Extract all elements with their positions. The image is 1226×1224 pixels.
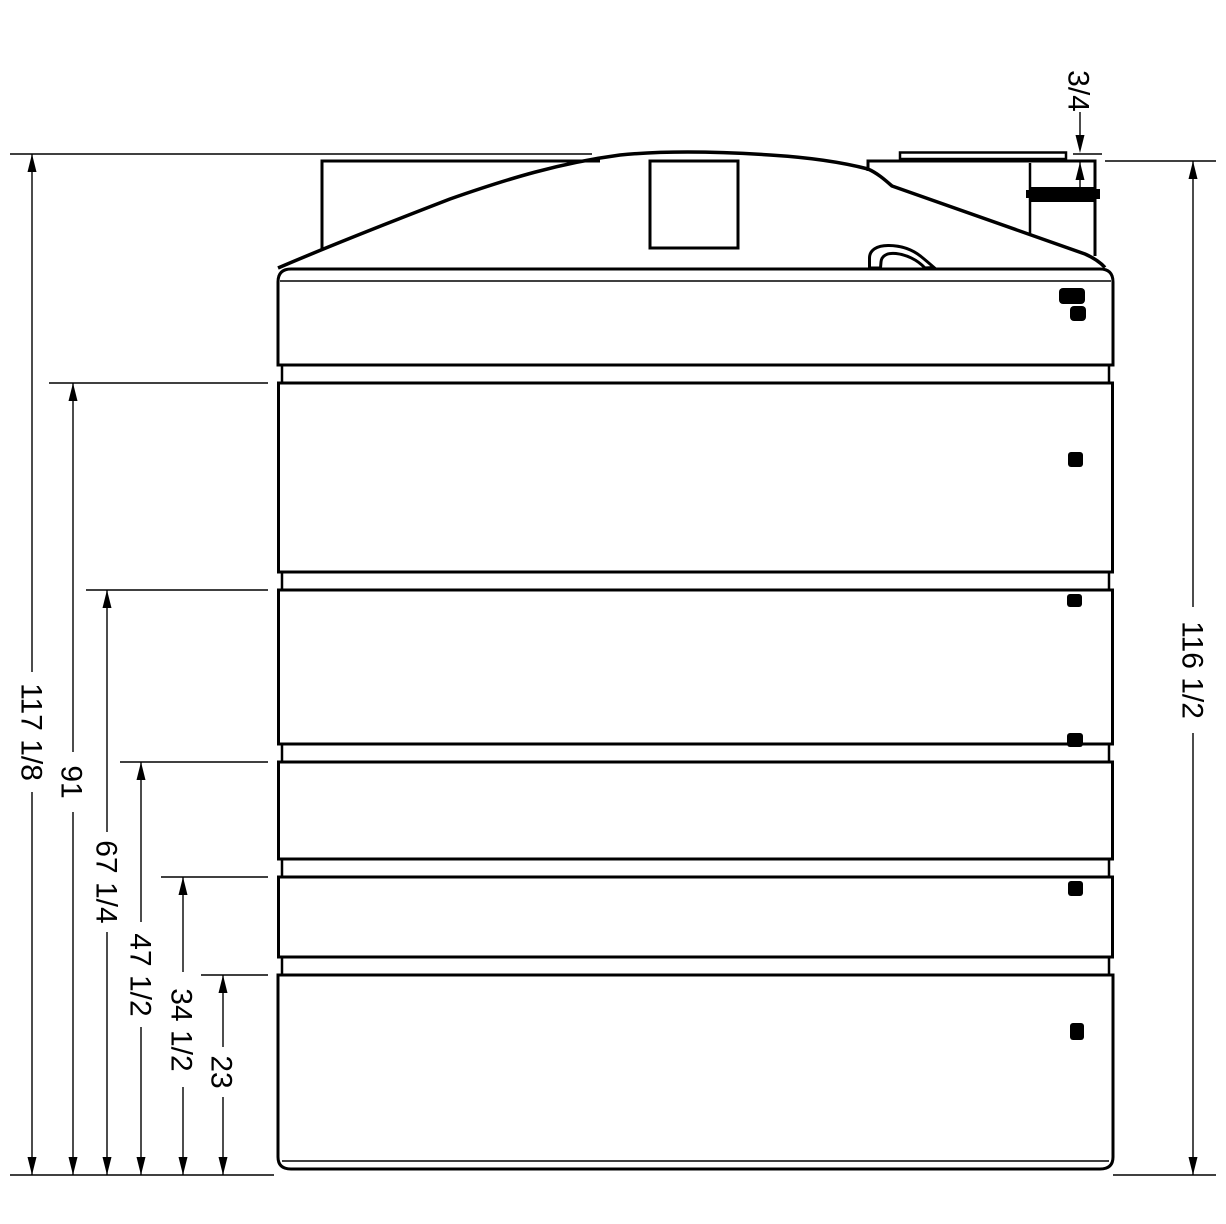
dimension-lines: [32, 112, 1193, 1175]
dome-curve: [278, 152, 868, 268]
dim-label-116-1-2: 116 1/2: [1176, 621, 1209, 719]
lid-tie-down-hook: [870, 246, 935, 269]
arrowheads: [28, 135, 1198, 1175]
rib-grooves: [282, 365, 1109, 975]
fitting-5: [1068, 881, 1083, 896]
fitting-4: [1067, 733, 1083, 747]
drawing-svg: 117 1/8 91 67 1/4 47 1/2 34 1/2 23 116 1…: [0, 0, 1226, 1224]
dim-label-3-4: 3/4: [1062, 70, 1095, 112]
dim-label-117-1-8: 117 1/8: [15, 683, 48, 781]
fitting-1a: [1059, 288, 1085, 304]
tank-band-5: [279, 877, 1113, 957]
manway-outline: [322, 161, 600, 249]
vent-cap: [900, 153, 1066, 160]
tank-band-3: [279, 590, 1113, 744]
fitting-1b: [1070, 306, 1086, 321]
fitting-6: [1070, 1023, 1084, 1040]
dim-label-67-1-4: 67 1/4: [90, 840, 123, 923]
dim-label-34-1-2: 34 1/2: [165, 988, 198, 1071]
tank-band-2: [279, 383, 1113, 572]
fitting-riser-outline: [868, 161, 1095, 256]
tank-dimension-drawing: 117 1/8 91 67 1/4 47 1/2 34 1/2 23 116 1…: [0, 0, 1226, 1224]
small-lid-outline: [650, 161, 738, 248]
tank-body: [278, 246, 1113, 1170]
fitting-3: [1067, 594, 1082, 607]
tank-band-1: [278, 269, 1113, 365]
dim-label-23: 23: [205, 1055, 238, 1088]
fitting-2: [1068, 452, 1083, 467]
dome-top: [278, 152, 1105, 268]
dim-label-91: 91: [55, 765, 88, 798]
bulkhead-fittings: [1059, 288, 1086, 1040]
tank-band-4: [279, 762, 1113, 859]
dim-label-47-1-2: 47 1/2: [124, 933, 157, 1016]
threaded-fitting: [1026, 187, 1100, 202]
tank-band-6: [278, 975, 1113, 1169]
